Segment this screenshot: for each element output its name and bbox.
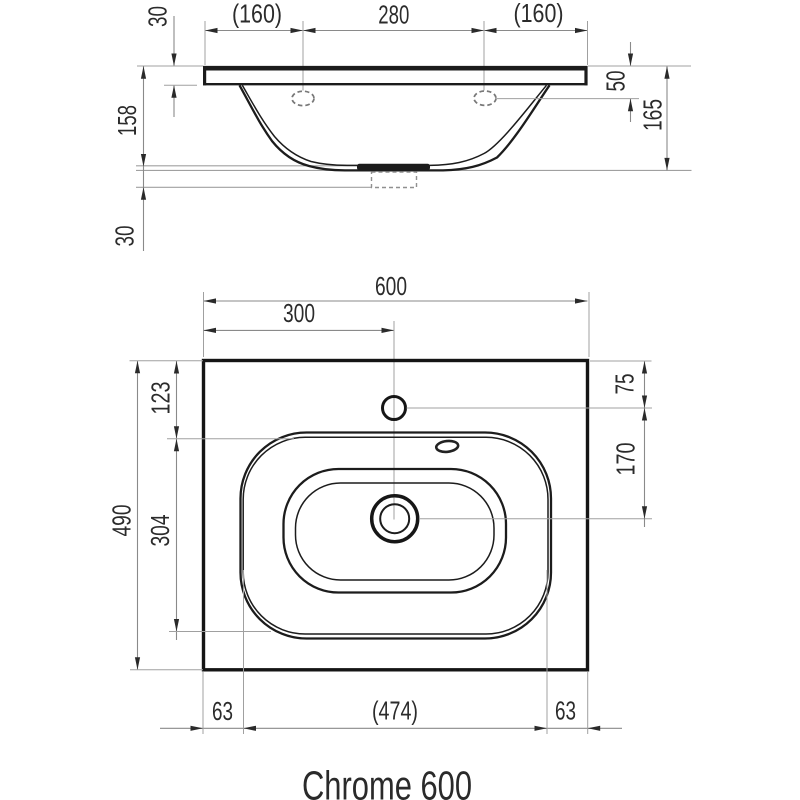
svg-text:30: 30 — [112, 226, 140, 247]
svg-text:123: 123 — [148, 382, 176, 415]
svg-text:75: 75 — [612, 374, 640, 395]
svg-text:(474): (474) — [372, 697, 418, 725]
svg-text:304: 304 — [147, 515, 175, 547]
svg-text:50: 50 — [603, 71, 631, 92]
svg-text:30: 30 — [145, 6, 173, 27]
svg-text:600: 600 — [375, 273, 407, 301]
svg-text:(160): (160) — [232, 1, 282, 29]
svg-text:165: 165 — [640, 99, 668, 131]
svg-text:(160): (160) — [514, 0, 564, 28]
svg-text:158: 158 — [114, 105, 142, 136]
svg-text:490: 490 — [108, 505, 136, 537]
svg-text:170: 170 — [613, 443, 641, 476]
svg-text:63: 63 — [555, 698, 576, 726]
svg-text:Chrome 600: Chrome 600 — [302, 763, 472, 800]
svg-text:63: 63 — [212, 698, 233, 726]
svg-text:280: 280 — [378, 2, 409, 30]
svg-text:300: 300 — [283, 300, 315, 328]
